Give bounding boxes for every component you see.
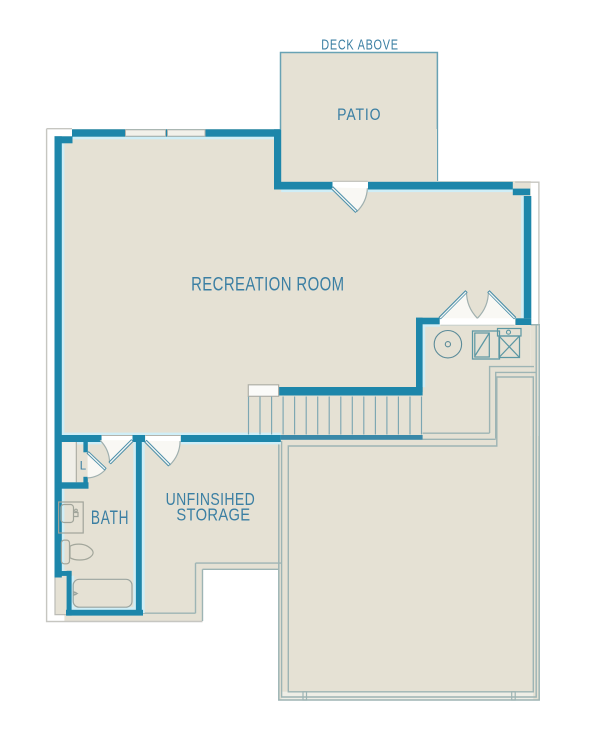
svg-text:L: L xyxy=(80,460,87,472)
svg-text:STORAGE: STORAGE xyxy=(176,505,250,525)
svg-text:DECK ABOVE: DECK ABOVE xyxy=(321,36,399,53)
svg-text:RECREATION ROOM: RECREATION ROOM xyxy=(191,274,344,295)
svg-text:BATH: BATH xyxy=(91,507,129,529)
svg-text:PATIO: PATIO xyxy=(337,106,381,124)
